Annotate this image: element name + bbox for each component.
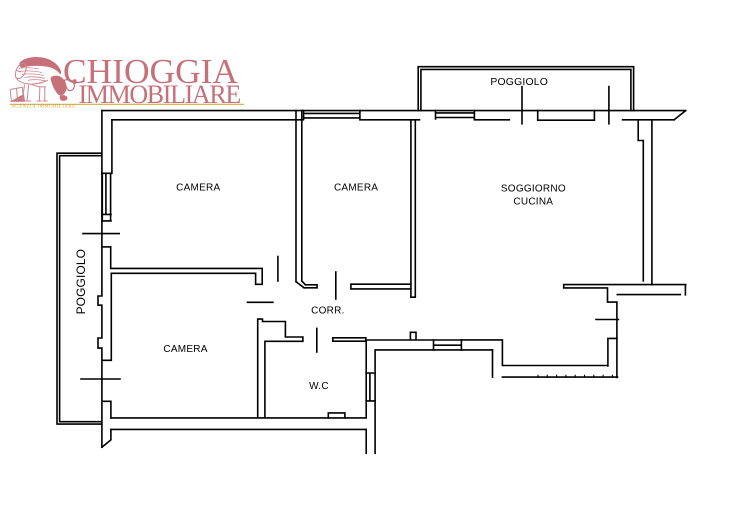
svg-text:CAMERA: CAMERA <box>176 183 220 194</box>
svg-text:CAMERA: CAMERA <box>163 344 207 355</box>
svg-text:POGGIOLO: POGGIOLO <box>74 249 88 314</box>
svg-text:CAMERA: CAMERA <box>334 183 378 194</box>
svg-text:W.C: W.C <box>309 381 329 392</box>
svg-text:CUCINA: CUCINA <box>513 197 553 208</box>
svg-text:CORR.: CORR. <box>311 305 344 316</box>
svg-text:POGGIOLO: POGGIOLO <box>490 77 548 88</box>
svg-text:SOGGIORNO: SOGGIORNO <box>501 184 566 195</box>
svg-text:AGENZIA IMMOBILIARE: AGENZIA IMMOBILIARE <box>11 105 75 110</box>
